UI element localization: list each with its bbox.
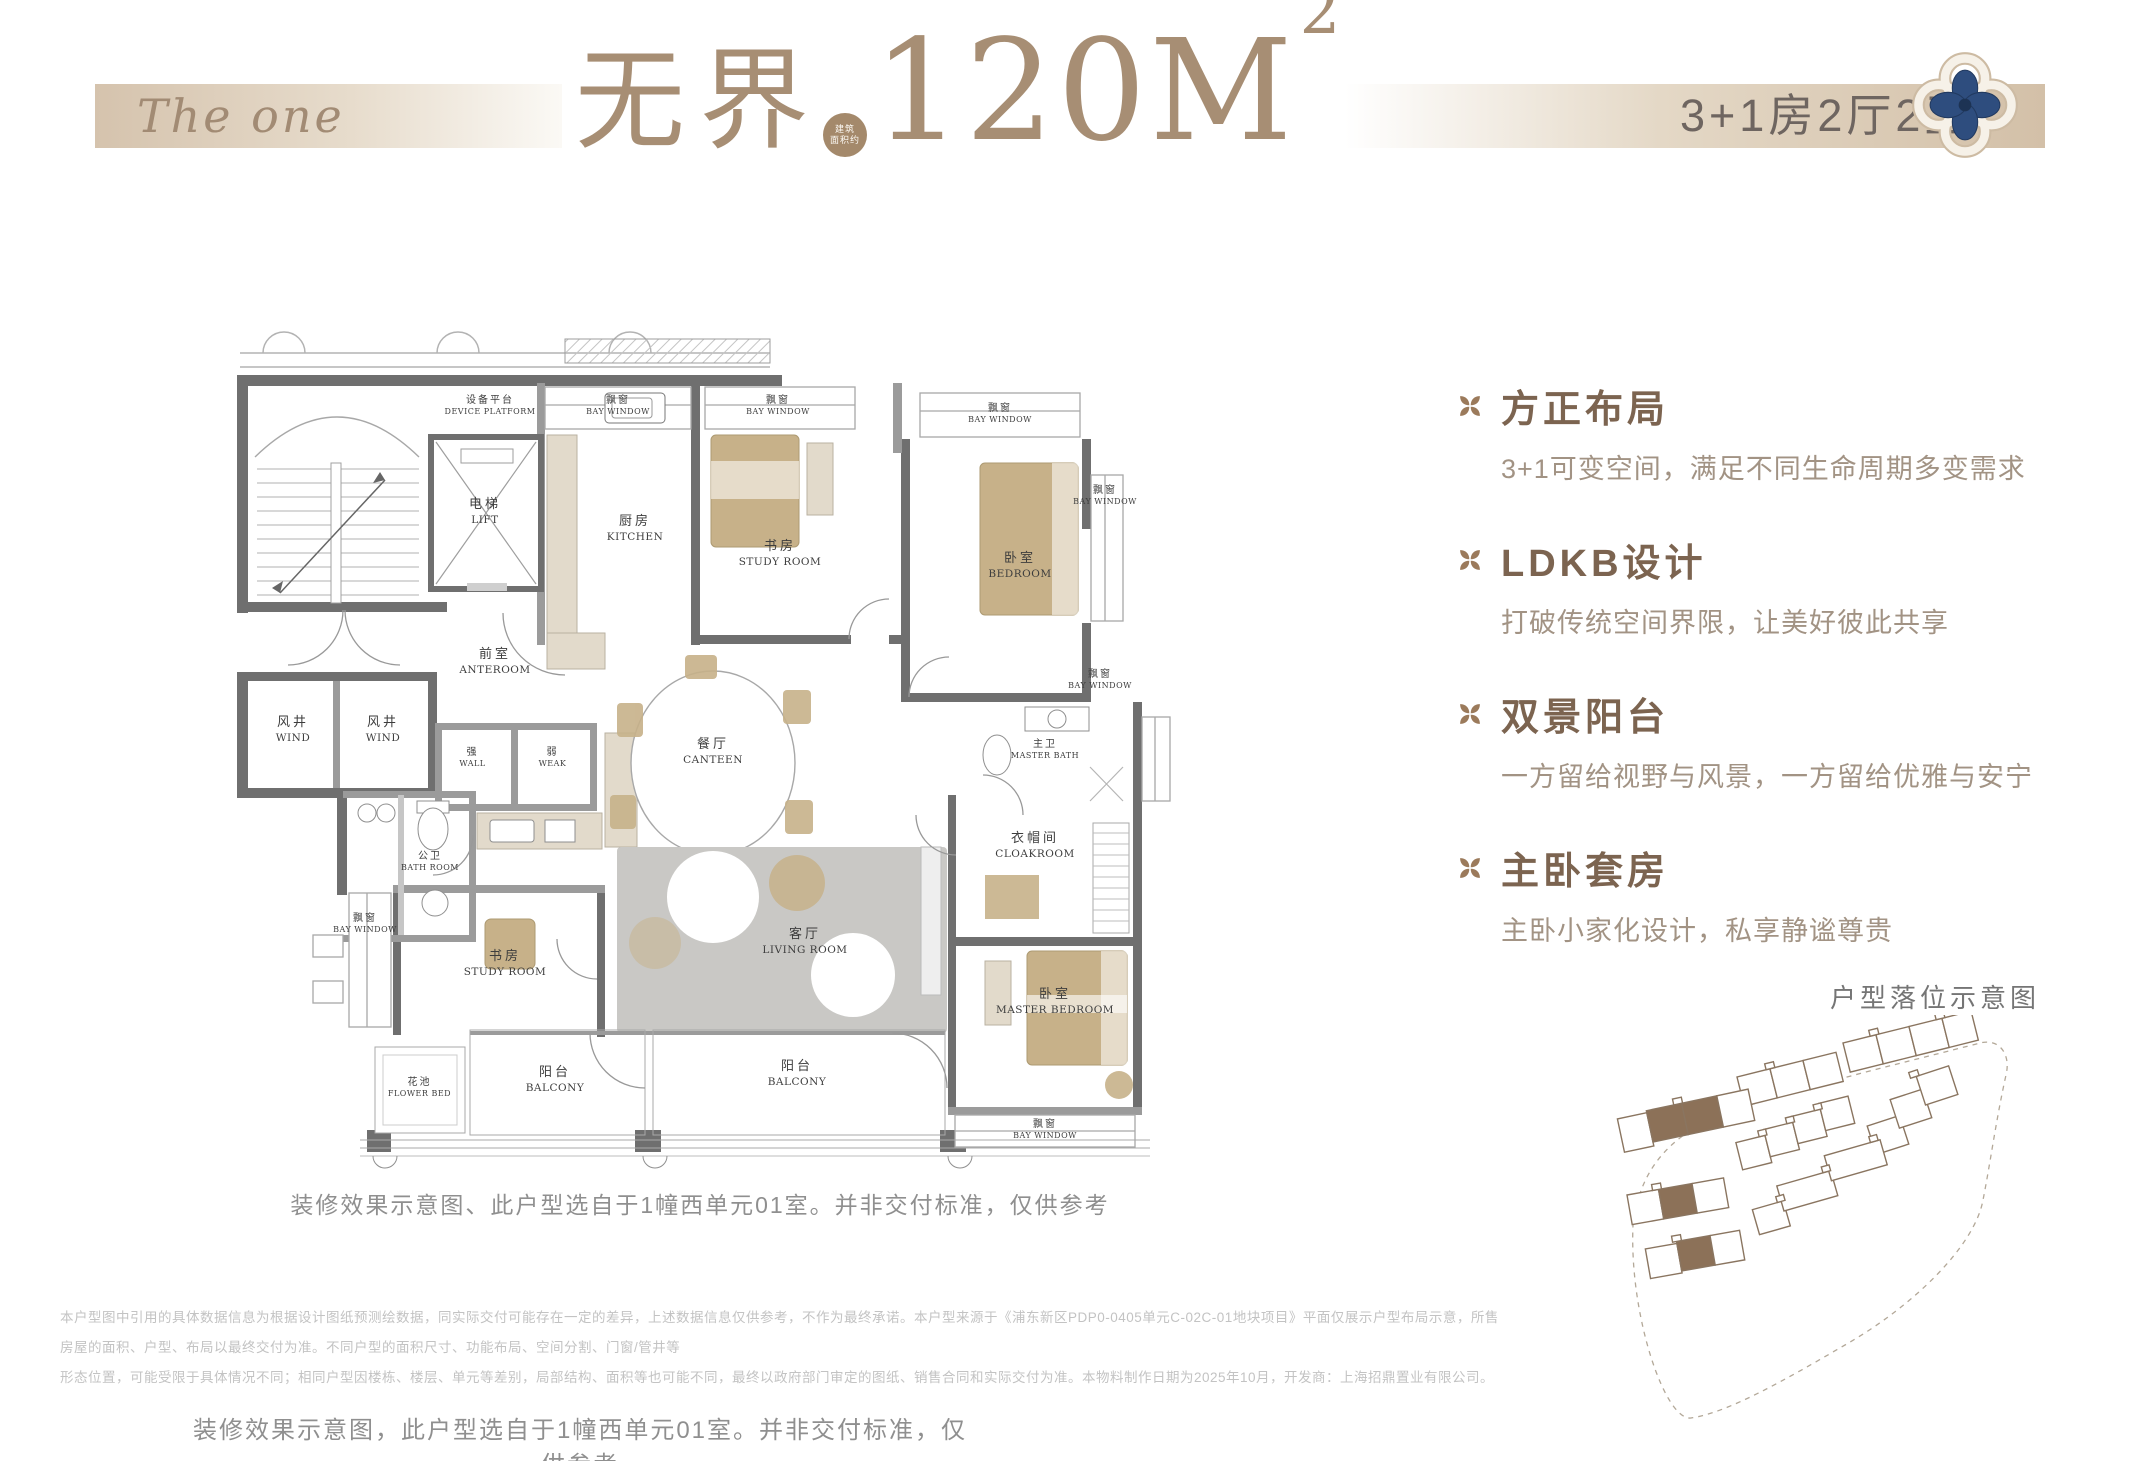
site-plan-drawing [1585, 1015, 2105, 1425]
floor-plan-drawing [185, 235, 1215, 1175]
feature-title: 方正布局 [1501, 378, 1669, 433]
feature-desc: 3+1可变空间，满足不同生命周期多变需求 [1501, 447, 2035, 486]
flower-bullet-icon [1455, 699, 1485, 729]
feature-title: LDKB设计 [1501, 532, 1707, 587]
page: The one 无界 建筑 面积约 120M2 3+1房2厅2卫 [0, 0, 2140, 1461]
flower-bullet-icon [1455, 391, 1485, 421]
feature-desc: 一方留给视野与风景，一方留给优雅与安宁 [1501, 755, 2035, 794]
flower-bullet-icon [1455, 545, 1485, 575]
floor-plan: 设备平台DEVICE PLATFORM 电梯LIFT 飘窗BAY WINDOW … [185, 235, 1215, 1175]
title-cn: 无界 [575, 33, 823, 171]
disclaimer: 本户型图中引用的具体数据信息为根据设计图纸预测绘数据，同实际交付可能存在一定的差… [60, 1303, 1500, 1393]
disclaimer-line-2: 形态位置，可能受限于具体情况不同；相同户型因楼栋、楼层、单元等差别，局部结构、面… [60, 1363, 1500, 1393]
feature-item-4: 主卧套房 主卧小家化设计，私享静谧尊贵 [1455, 840, 2035, 948]
disclaimer-line-1: 本户型图中引用的具体数据信息为根据设计图纸预测绘数据，同实际交付可能存在一定的差… [60, 1303, 1500, 1363]
plan-caption: 装修效果示意图、此户型选自于1幢西单元01室。并非交付标准，仅供参考 [185, 1186, 1215, 1220]
feature-title: 主卧套房 [1501, 840, 1669, 895]
feature-item-1: 方正布局 3+1可变空间，满足不同生命周期多变需求 [1455, 378, 2035, 486]
brand-logo: The one [137, 89, 345, 143]
flower-bullet-icon [1455, 853, 1485, 883]
brand-banner: The one [95, 84, 562, 148]
area-superscript: 2 [1300, 0, 1344, 49]
feature-list: 方正布局 3+1可变空间，满足不同生命周期多变需求 LDKB设计 打破传统空间界… [1455, 378, 2035, 994]
feature-desc: 打破传统空间界限，让美好彼此共享 [1501, 601, 2035, 640]
feature-title: 双景阳台 [1501, 686, 1669, 741]
area-badge: 建筑 面积约 [823, 113, 867, 157]
page-title: 无界 建筑 面积约 120M2 [575, 22, 1343, 171]
feature-item-3: 双景阳台 一方留给视野与风景，一方留给优雅与安宁 [1455, 686, 2035, 794]
footer-caption: 装修效果示意图，此户型选自于1幢西单元01室。并非交付标准，仅供参考 [180, 1410, 980, 1461]
site-plan-label: 户型落位示意图 [1830, 978, 2040, 1015]
feature-desc: 主卧小家化设计，私享静谧尊贵 [1501, 909, 2035, 948]
feature-item-2: LDKB设计 打破传统空间界限，让美好彼此共享 [1455, 532, 2035, 640]
area-value: 120M2 [873, 22, 1343, 162]
brand-flower-icon [1910, 50, 2020, 160]
